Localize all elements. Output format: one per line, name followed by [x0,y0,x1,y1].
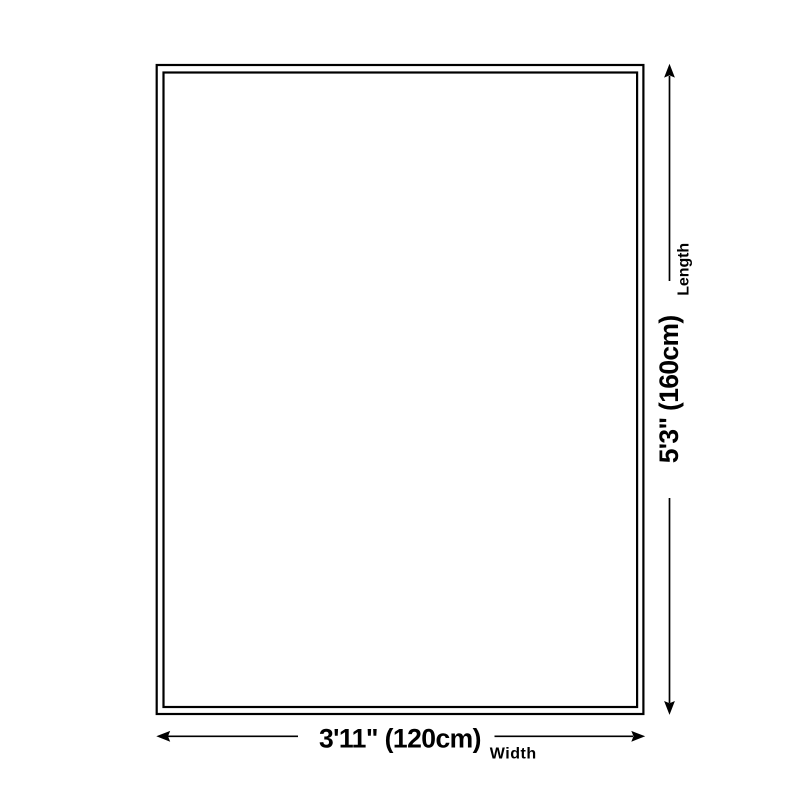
svg-text:Length: Length [676,243,693,296]
svg-text:5'3" (160cm): 5'3" (160cm) [654,315,684,464]
svg-text:Width: Width [490,745,536,762]
svg-text:3'11" (120cm): 3'11" (120cm) [319,724,482,754]
